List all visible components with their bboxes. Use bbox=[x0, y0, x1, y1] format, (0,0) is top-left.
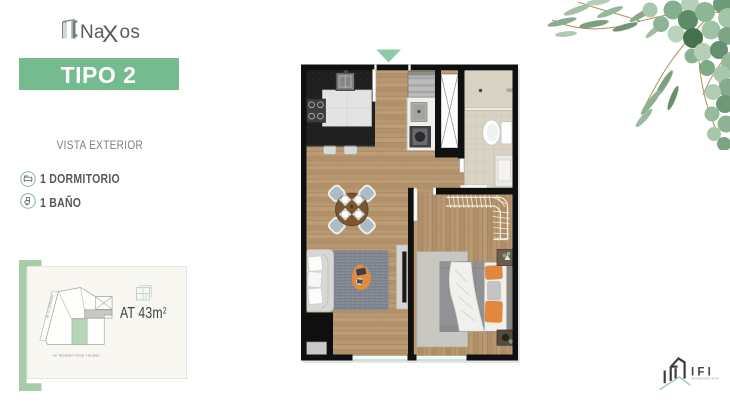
svg-text:X: X bbox=[102, 21, 118, 46]
svg-text:AV. RICARDO TIZON Y BUENO: AV. RICARDO TIZON Y BUENO bbox=[53, 354, 100, 358]
svg-text:INMOBILIARIA FIORI: INMOBILIARIA FIORI bbox=[692, 378, 720, 381]
svg-text:os: os bbox=[120, 22, 141, 43]
